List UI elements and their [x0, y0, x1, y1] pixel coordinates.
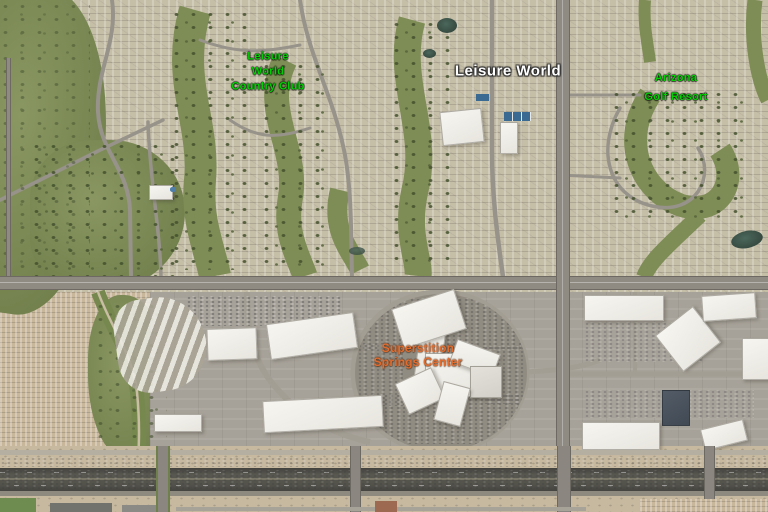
- freeway-edge-road: [0, 491, 768, 496]
- tree-cluster: [168, 8, 250, 270]
- label-line: Springs Center: [374, 355, 463, 369]
- map-label-superstition-springs-center[interactable]: Superstition Springs Center: [374, 341, 463, 369]
- building-roof: [154, 414, 202, 432]
- label-line: Arizona: [644, 69, 707, 88]
- tree-cluster: [388, 18, 450, 270]
- grass-patch: [0, 498, 36, 512]
- building-roof: [122, 505, 156, 512]
- freeway-shoulder-lot: [0, 457, 768, 467]
- building-roof: [262, 395, 384, 433]
- community-center-building: [439, 108, 484, 146]
- road-centerline: [0, 282, 768, 283]
- label-line: Country Club: [231, 80, 304, 95]
- building-roof: [742, 338, 768, 380]
- building-roof: [582, 422, 660, 450]
- red-roof-building: [375, 501, 397, 512]
- tennis-courts: [504, 112, 531, 121]
- dark-roof-building: [50, 503, 112, 512]
- pond: [423, 49, 436, 58]
- map-label-leisure-world[interactable]: Leisure World: [455, 63, 561, 80]
- tree-cluster: [608, 88, 748, 218]
- map-label-arizona-golf-resort[interactable]: Arizona Golf Resort: [644, 69, 707, 107]
- tennis-court: [476, 94, 489, 101]
- dark-roof-building: [662, 390, 690, 426]
- building-roof: [500, 122, 518, 154]
- label-line: Leisure: [231, 50, 304, 65]
- map-label-leisure-world-country-club[interactable]: Leisure World Country Club: [231, 50, 304, 95]
- building-roof: [584, 295, 664, 321]
- building-roof: [701, 292, 757, 322]
- label-line: Superstition: [374, 341, 463, 355]
- freeway-overpass: [350, 446, 361, 512]
- building-roof: [206, 327, 257, 361]
- road-centerline: [562, 0, 563, 450]
- pond: [349, 247, 365, 255]
- mall-building: [470, 366, 502, 398]
- tree-cluster: [0, 0, 90, 290]
- pond: [437, 18, 457, 33]
- label-line: Golf Resort: [644, 88, 707, 107]
- residential-strip-south: [640, 499, 768, 512]
- freeway: [0, 468, 768, 491]
- local-road-west: [6, 58, 11, 278]
- label-text: Leisure World: [455, 63, 561, 80]
- frontage-road: [0, 450, 768, 455]
- arterial-road-horizontal: [0, 276, 768, 290]
- label-line: World: [231, 65, 304, 80]
- swimming-pool: [170, 187, 176, 192]
- satellite-map-canvas[interactable]: Leisure World Country Club Leisure World…: [0, 0, 768, 512]
- freeway-traffic: [0, 470, 768, 489]
- freeway-overpass: [557, 446, 571, 512]
- freeway-overpass: [156, 446, 170, 512]
